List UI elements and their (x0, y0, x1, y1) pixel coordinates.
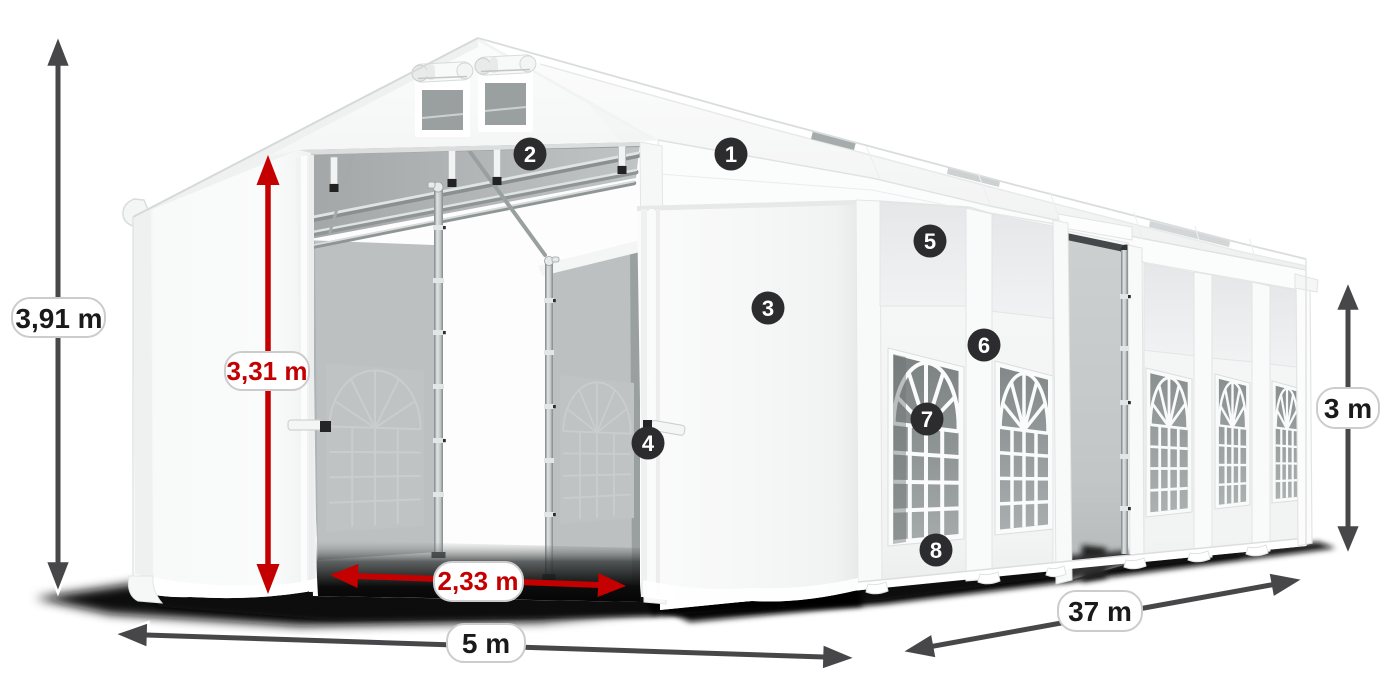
svg-text:8: 8 (930, 538, 942, 563)
svg-text:3,31 m: 3,31 m (227, 356, 308, 386)
svg-text:5: 5 (924, 229, 936, 254)
svg-text:3: 3 (762, 296, 774, 321)
svg-text:7: 7 (921, 407, 933, 432)
svg-text:3,91 m: 3,91 m (15, 303, 102, 334)
svg-text:37 m: 37 m (1068, 596, 1132, 627)
svg-text:5 m: 5 m (462, 628, 510, 659)
svg-text:6: 6 (978, 333, 990, 358)
svg-text:2,33 m: 2,33 m (438, 566, 519, 596)
svg-text:1: 1 (725, 142, 737, 167)
svg-text:2: 2 (524, 142, 536, 167)
svg-text:4: 4 (642, 431, 655, 456)
svg-text:3 m: 3 m (1324, 393, 1372, 424)
